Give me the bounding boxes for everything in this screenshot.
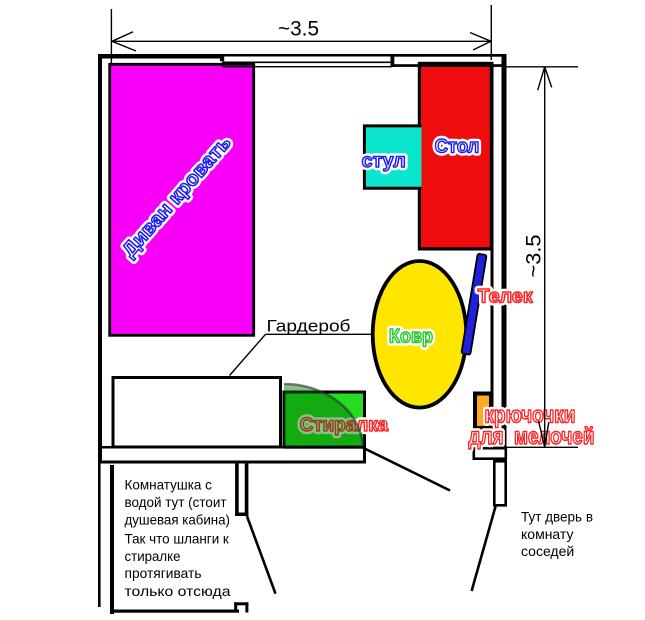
svg-text:Ковр: Ковр [389, 326, 433, 348]
svg-text:Телек: Телек [478, 286, 533, 308]
svg-text:стиралке: стиралке [125, 548, 181, 564]
svg-text:~3.5: ~3.5 [523, 235, 546, 278]
svg-text:стул: стул [362, 150, 406, 172]
svg-text:комнату: комнату [521, 526, 573, 542]
svg-text:Комнатушка с: Комнатушка с [125, 477, 212, 493]
svg-text:душевая кабина): душевая кабина) [125, 511, 231, 527]
svg-text:протягивать: протягивать [125, 565, 202, 581]
svg-text:водой тут (стоит: водой тут (стоит [125, 494, 228, 510]
svg-text:для мелочей: для мелочей [469, 423, 595, 449]
svg-text:соседей: соседей [521, 543, 574, 559]
svg-text:Тут дверь в: Тут дверь в [521, 509, 593, 525]
svg-text:Гардероб: Гардероб [267, 318, 351, 336]
svg-text:Стол: Стол [435, 136, 480, 158]
svg-text:только отсюда: только отсюда [125, 583, 231, 599]
svg-text:Так что шланги к: Так что шланги к [125, 530, 230, 546]
svg-text:~3.5: ~3.5 [278, 18, 319, 41]
